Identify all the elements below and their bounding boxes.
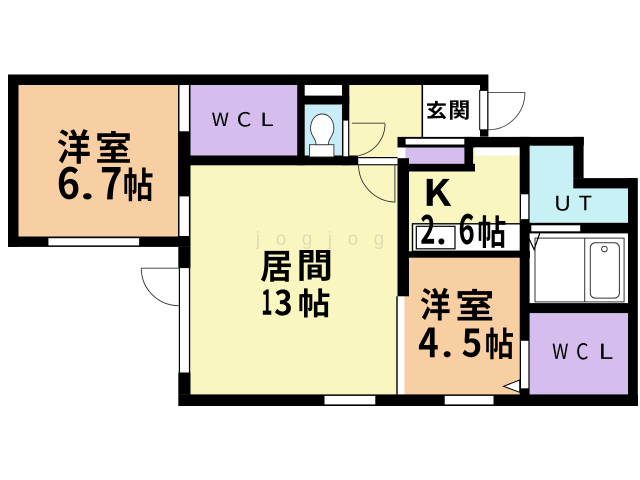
svg-text:jogjog: jogjog <box>255 229 400 250</box>
